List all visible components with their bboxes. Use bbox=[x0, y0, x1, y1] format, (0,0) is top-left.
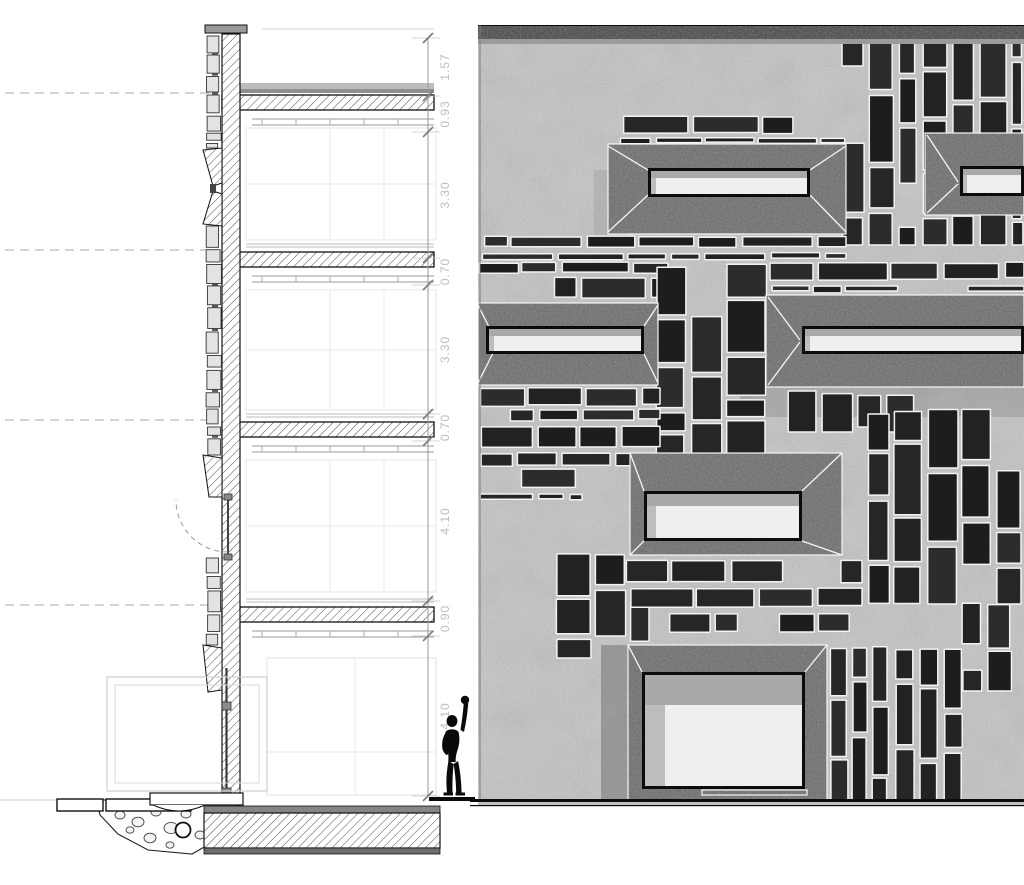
window-window-ground-large bbox=[628, 645, 827, 800]
window-slot-top-right-edge bbox=[925, 133, 1024, 215]
dimension-label: 3.30 bbox=[438, 181, 452, 208]
window-slot-mid-right-edge bbox=[766, 295, 1024, 387]
dimension-label: 3.30 bbox=[438, 336, 452, 363]
architectural-drawing: 1.570.933.300.703.300.704.100.904.10 bbox=[0, 0, 1024, 885]
dimension-label: 0.93 bbox=[438, 100, 452, 127]
floor-slabs bbox=[222, 83, 434, 637]
dimension-label: 1.57 bbox=[438, 53, 452, 80]
interior-faint-lines bbox=[246, 29, 436, 795]
facade-elevation-drawing bbox=[478, 24, 1024, 806]
level-lines bbox=[0, 93, 212, 800]
dimension-label: 0.70 bbox=[438, 258, 452, 285]
foundation-detail bbox=[57, 793, 440, 854]
window-slot-mid-left-edge bbox=[478, 303, 658, 385]
wall-section-drawing: 1.570.933.300.703.300.704.100.904.10 bbox=[0, 25, 452, 854]
window-slot-upper-left bbox=[608, 144, 846, 234]
stone-cladding-section bbox=[206, 36, 221, 645]
glazing-section bbox=[107, 494, 267, 796]
dimension-label: 0.70 bbox=[438, 414, 452, 441]
window-window-center bbox=[630, 453, 842, 555]
dimension-label: 4.10 bbox=[438, 507, 452, 534]
dimension-label: 0.90 bbox=[438, 605, 452, 632]
drawing-sheet: 1.570.933.300.703.300.704.100.904.10 bbox=[0, 0, 1024, 885]
